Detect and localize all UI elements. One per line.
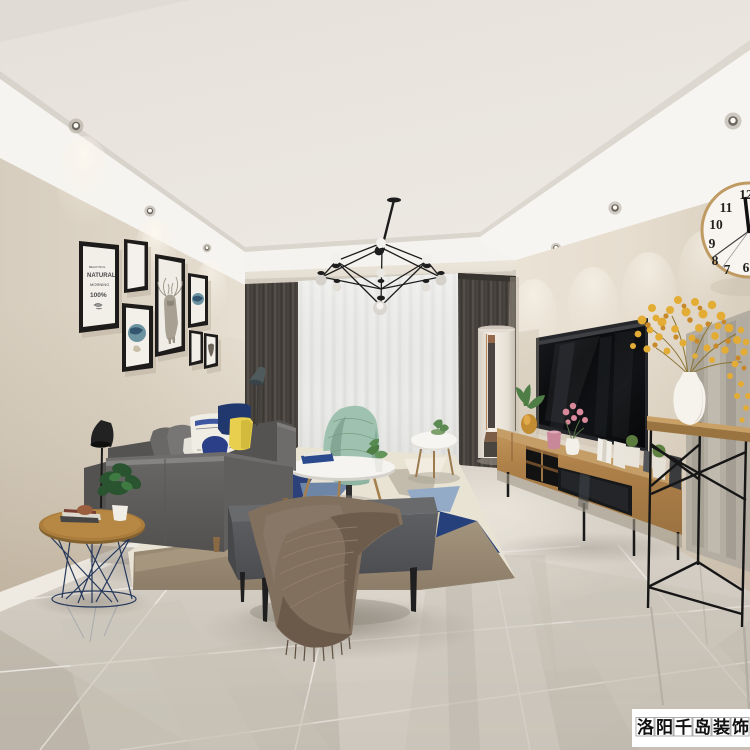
svg-text:千: 千 [675,718,692,737]
svg-text:100%: 100% [90,292,107,299]
svg-text:装: 装 [712,717,730,737]
svg-text:饰: 饰 [732,717,749,737]
svg-text:6: 6 [743,260,750,275]
svg-text:NATURAL: NATURAL [87,273,116,279]
svg-text:10: 10 [709,217,723,232]
svg-text:阳: 阳 [656,718,673,737]
svg-text:MORNING: MORNING [90,282,109,287]
svg-text:11: 11 [720,200,733,215]
svg-text:洛: 洛 [637,717,655,737]
svg-text:9: 9 [709,236,716,251]
svg-text:岛: 岛 [694,717,711,737]
svg-text:BEAUTIFUL: BEAUTIFUL [89,265,106,269]
